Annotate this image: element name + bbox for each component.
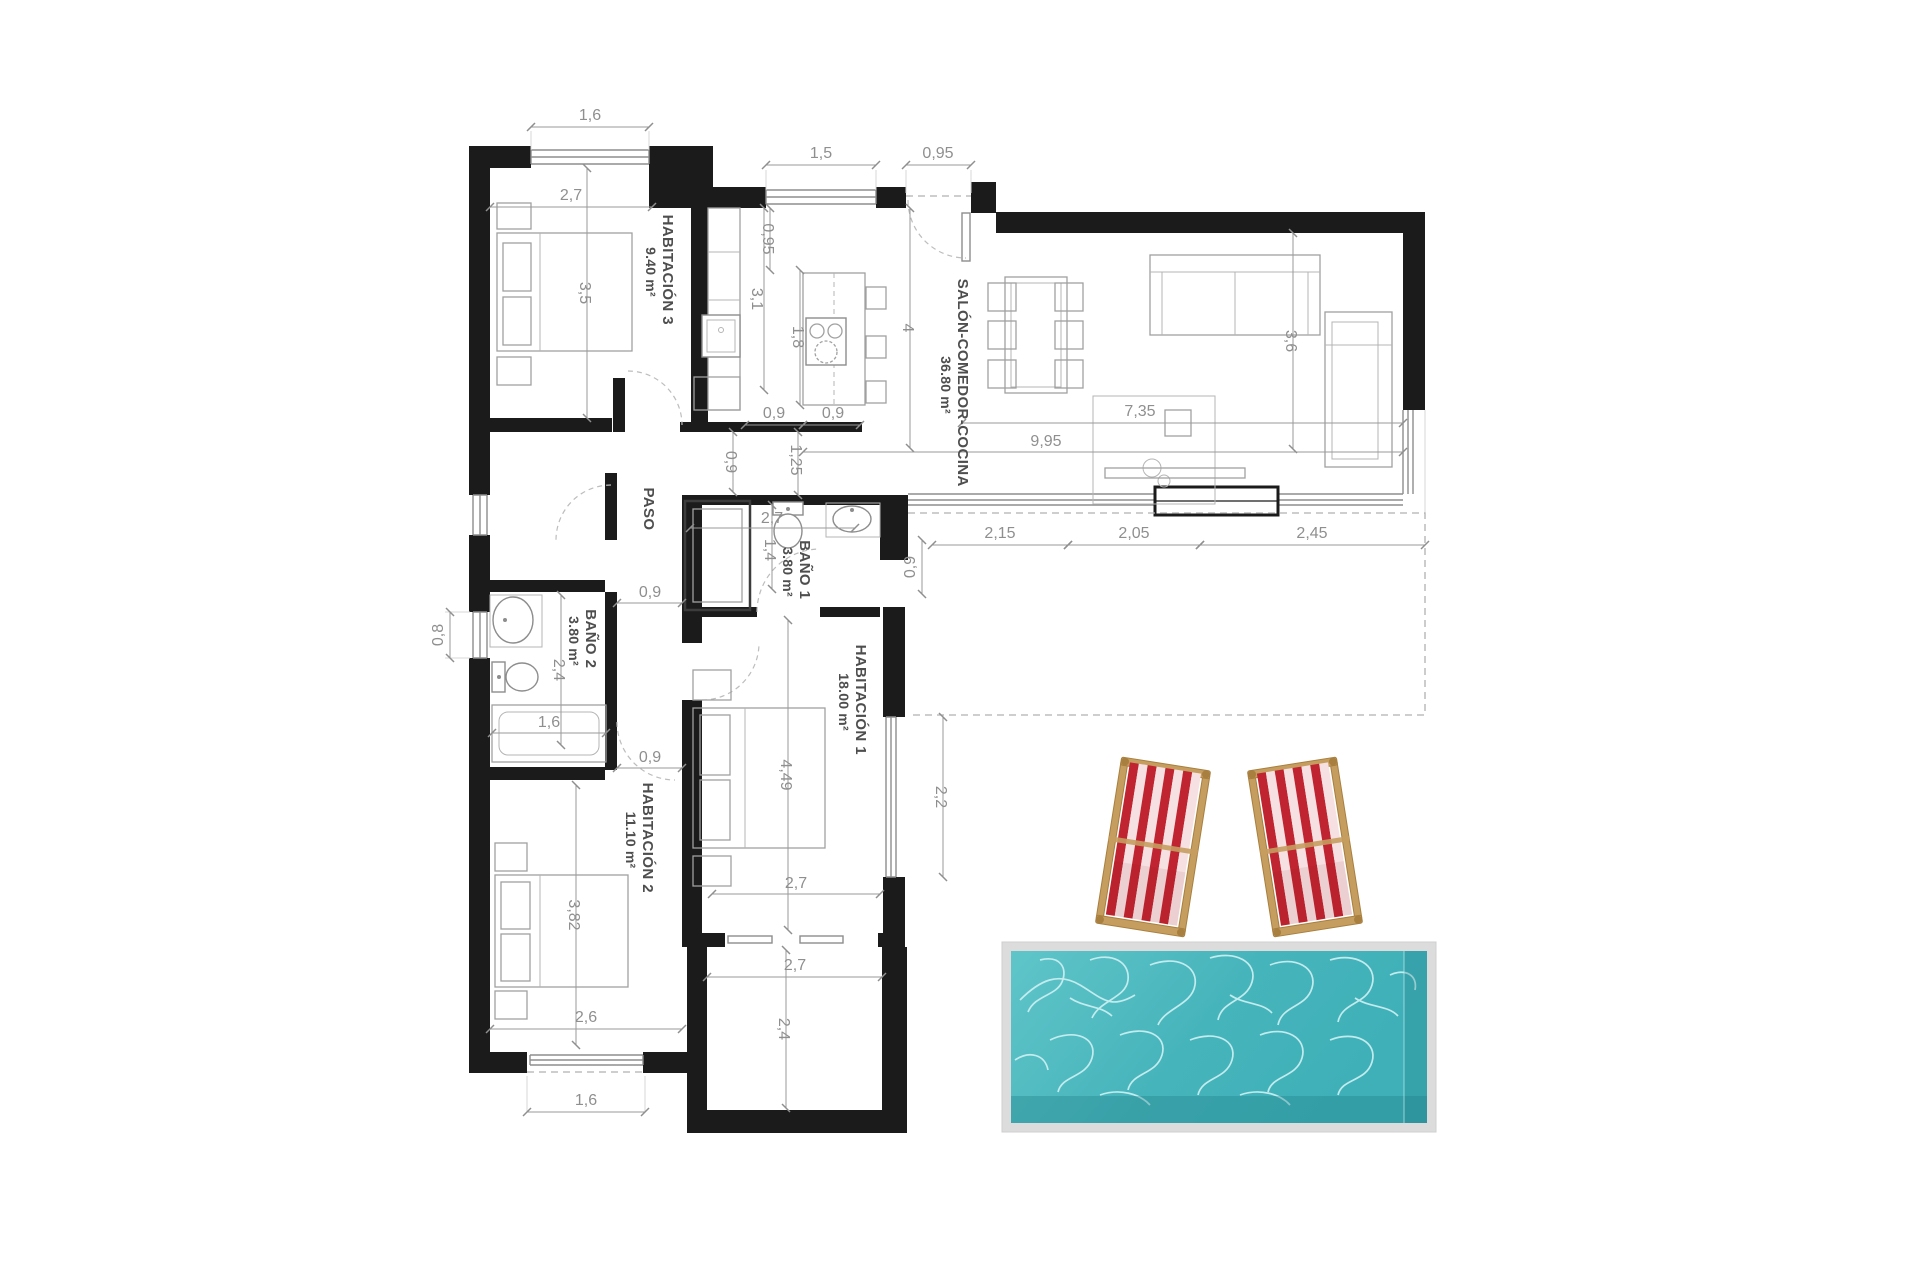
sliding-door-terrace bbox=[1155, 487, 1278, 515]
sink-bano2 bbox=[490, 595, 542, 647]
door-bano2 bbox=[556, 485, 611, 540]
room-label-bano1: BAÑO 1 3.80 m² bbox=[780, 540, 814, 604]
dim-terrace-seg2: 2,05 bbox=[1118, 525, 1149, 542]
bed-hab1 bbox=[693, 670, 825, 886]
dim-hab3-window: 1,6 bbox=[579, 107, 601, 124]
pool-shadow-right bbox=[1404, 951, 1427, 1123]
dim-paso-to-bath: 1,25 bbox=[787, 444, 804, 475]
bed-hab2 bbox=[495, 843, 628, 1019]
floor-plan-svg: 1,6 2,7 1,5 0,95 0,95 3,1 1,8 4 3,5 9,95… bbox=[0, 0, 1920, 1280]
window-paso-left bbox=[473, 495, 487, 535]
door-store-double bbox=[728, 936, 843, 943]
room-label-hab3: HABITACIÓN 3 9.40 m² bbox=[643, 215, 677, 330]
bed-hab3 bbox=[497, 203, 632, 385]
dim-store-width: 2,7 bbox=[784, 957, 806, 974]
dim-hab2-length: 3,82 bbox=[565, 899, 582, 930]
dim-bano1-width: 2,7 bbox=[761, 510, 783, 527]
pool-shadow-bottom bbox=[1011, 1096, 1427, 1123]
dim-hab1-width: 2,7 bbox=[785, 875, 807, 892]
dim-island-len: 1,8 bbox=[789, 326, 806, 348]
dim-island-width: 0,9 bbox=[822, 405, 844, 422]
dim-bano2-window: 0,8 bbox=[430, 624, 447, 646]
dim-paso-door: 0,9 bbox=[639, 584, 661, 601]
sofa bbox=[1150, 255, 1320, 335]
chaise-longue bbox=[1325, 312, 1392, 467]
toilet-bano2 bbox=[492, 662, 538, 692]
window-kitchen-top bbox=[766, 190, 876, 204]
room-label-hab1: HABITACIÓN 1 18.00 m² bbox=[836, 645, 870, 760]
dim-hab1-length: 4,49 bbox=[777, 759, 794, 790]
room-label-salon: SALÓN-COMEDOR-COCINA 36.80 m² bbox=[938, 279, 972, 491]
dim-kitchen-top-gap: 0,95 bbox=[759, 223, 776, 254]
furniture bbox=[490, 203, 1392, 1019]
window-hab1-right bbox=[886, 717, 896, 877]
dim-hab3-depth: 3,5 bbox=[576, 282, 593, 304]
floor-plan-page: 1,6 2,7 1,5 0,95 0,95 3,1 1,8 4 3,5 9,95… bbox=[0, 0, 1920, 1280]
deck-chairs bbox=[1095, 757, 1362, 937]
dim-island-gap: 0,9 bbox=[763, 405, 785, 422]
dim-terrace-seg1: 2,15 bbox=[984, 525, 1015, 542]
dim-hab1-window: 2,2 bbox=[932, 786, 949, 808]
deck-chair-left bbox=[1095, 757, 1210, 937]
dim-bano1-depth: 1,4 bbox=[761, 539, 778, 561]
dining-table bbox=[988, 277, 1083, 393]
dim-salon-height: 3,6 bbox=[1282, 330, 1299, 352]
dim-hab2-bottom-window: 1,6 bbox=[575, 1092, 597, 1109]
dim-kitchen-counter-len: 3,1 bbox=[748, 288, 765, 310]
door-hab3 bbox=[628, 371, 682, 425]
kitchen-island bbox=[803, 273, 886, 405]
dim-kitchen-window: 1,5 bbox=[810, 145, 832, 162]
dim-salon-depth: 4 bbox=[899, 324, 916, 333]
room-label-paso: PASO bbox=[640, 488, 657, 531]
dim-bano2-tub: 1,6 bbox=[538, 714, 560, 731]
sink-bano1 bbox=[826, 503, 880, 537]
swimming-pool bbox=[1002, 942, 1436, 1132]
dim-bano2-depth: 2,4 bbox=[550, 659, 567, 681]
dim-salon-width: 9,95 bbox=[1030, 433, 1061, 450]
deck-chair-right bbox=[1247, 757, 1362, 937]
entrance-door bbox=[906, 196, 971, 261]
dim-entrance-width: 0,95 bbox=[922, 145, 953, 162]
window-bano2-left bbox=[473, 612, 487, 658]
window-hab2-bottom bbox=[530, 1055, 643, 1065]
room-label-bano2: BAÑO 2 3.80 m² bbox=[566, 609, 600, 673]
dim-store-depth: 2,4 bbox=[775, 1018, 792, 1040]
dim-hab2-door: 0,9 bbox=[639, 749, 661, 766]
dim-terrace-seg3: 2,45 bbox=[1296, 525, 1327, 542]
tv-sideboard bbox=[1105, 468, 1245, 478]
dim-salon-inner-width: 7,35 bbox=[1124, 403, 1155, 420]
dim-hab2-width: 2,6 bbox=[575, 1009, 597, 1026]
window-hab3-top bbox=[531, 150, 649, 164]
dim-salon-pass-gap: 0,9 bbox=[722, 451, 739, 473]
dim-terrace-depth: 0,9 bbox=[902, 556, 919, 578]
dim-hab3-width: 2,7 bbox=[560, 187, 582, 204]
